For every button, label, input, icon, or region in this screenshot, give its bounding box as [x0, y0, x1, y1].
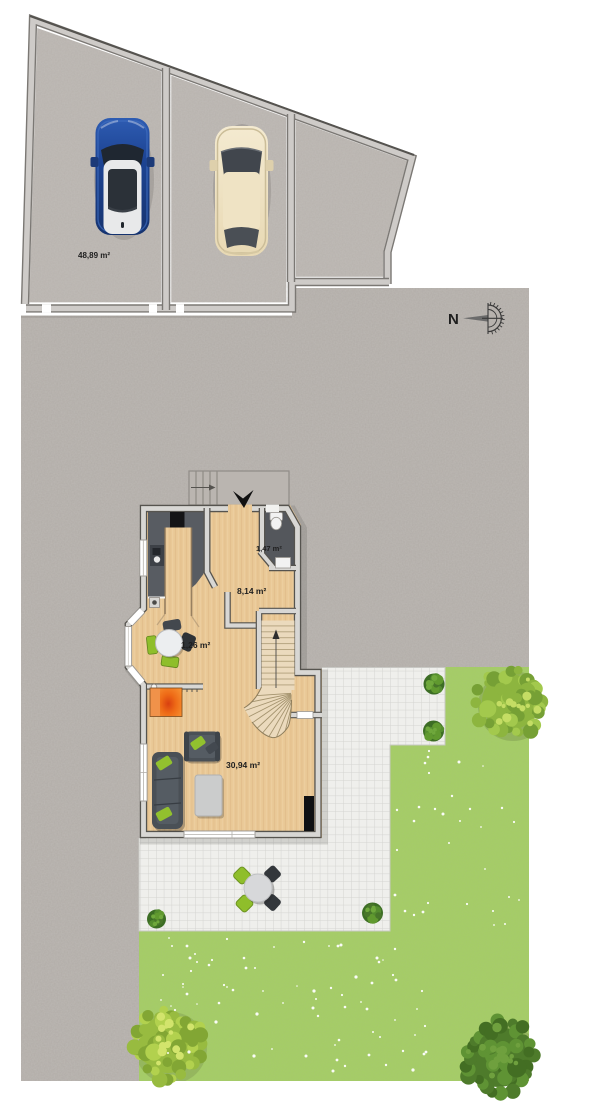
- svg-text:48,89 m²: 48,89 m²: [78, 251, 110, 260]
- svg-text:N: N: [448, 311, 459, 328]
- svg-text:8,14 m²: 8,14 m²: [237, 586, 266, 596]
- svg-text:1,47 m²: 1,47 m²: [256, 544, 282, 553]
- svg-text:1,26 m²: 1,26 m²: [181, 640, 210, 650]
- svg-text:30,94 m²: 30,94 m²: [226, 760, 260, 770]
